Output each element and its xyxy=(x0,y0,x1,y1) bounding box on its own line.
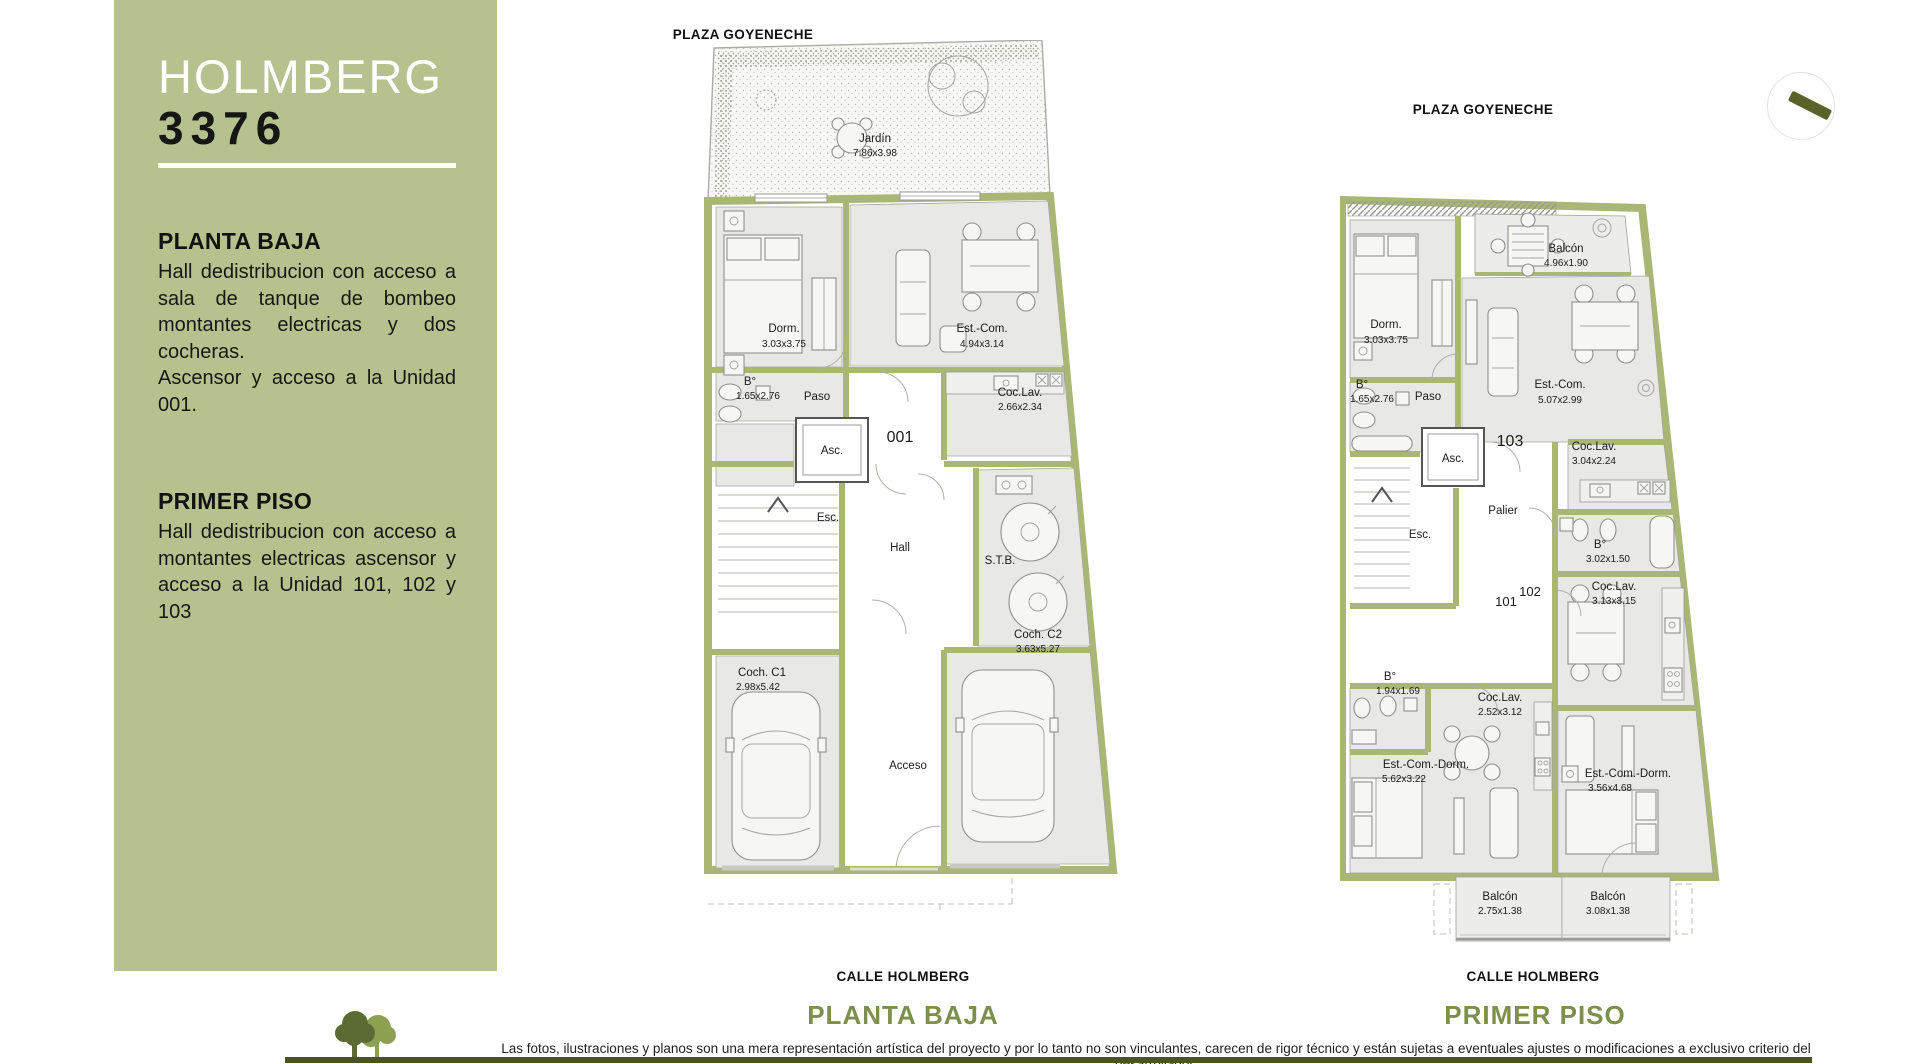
room-dims-coch-c1: 2.98x5.42 xyxy=(736,682,780,693)
calle-label-primer-piso: CALLE HOLMBERG xyxy=(1466,969,1599,984)
footer-bar xyxy=(285,1057,1812,1063)
room-label-bano-102: B° xyxy=(1594,539,1606,551)
section-paragraph: Hall dedistribucion con acceso a montant… xyxy=(158,519,456,625)
compass-needle-icon xyxy=(1788,91,1832,121)
section-heading-planta-baja: PLANTA BAJA xyxy=(158,228,456,255)
room-label-jardin: Jardín xyxy=(859,133,891,145)
property-lines xyxy=(708,878,1012,910)
room-label-acceso: Acceso xyxy=(889,760,927,772)
room-dims-est-com: 5.07x2.99 xyxy=(1538,395,1582,406)
room-label-bano-101: B° xyxy=(1384,671,1396,683)
kitchen-counter xyxy=(1580,480,1670,502)
room-dims-bano-1: 1.65x2.76 xyxy=(1350,394,1394,405)
room-label-est-com-dorm-101: Est.-Com.-Dorm. xyxy=(1383,759,1469,771)
room-label-dorm: Dorm. xyxy=(768,323,799,335)
room-label-asc: Asc. xyxy=(1442,453,1464,465)
room-dims-coch-c2: 3.63x5.27 xyxy=(1016,644,1060,655)
room-label-balcon-101: Balcón xyxy=(1482,891,1517,903)
room-dims-coc-lav-102: 3.13x3.15 xyxy=(1592,596,1636,607)
room-dims-balcon-102: 3.08x1.38 xyxy=(1586,906,1630,917)
room-label-bano: B° xyxy=(744,376,756,388)
room-label-est-com: Est.-Com. xyxy=(1534,379,1585,391)
room-label-bano-1: B° xyxy=(1356,379,1368,391)
room-label-coc-lav-103: Coc.Lav. xyxy=(1572,441,1617,453)
page: HOLMBERG 3376 PLANTA BAJA Hall dedistrib… xyxy=(0,0,1920,1064)
caption-primer-piso: PRIMER PISO xyxy=(1444,1000,1625,1031)
unit-number-001: 001 xyxy=(887,429,914,446)
caption-planta-baja: PLANTA BAJA xyxy=(807,1000,999,1031)
room-dims-coc-lav-101: 2.52x3.12 xyxy=(1478,707,1522,718)
calle-label-planta-baja: CALLE HOLMBERG xyxy=(836,969,969,984)
room-dims-est-com-dorm-102: 3.56x4.68 xyxy=(1588,783,1632,794)
room-dims-bano: 1.65x2.76 xyxy=(736,391,780,402)
room-dims-bano-101: 1.94x1.69 xyxy=(1376,686,1420,697)
car-icon xyxy=(726,692,826,860)
room-label-coch-c2: Coch. C2 xyxy=(1014,629,1062,641)
unit-number-103: 103 xyxy=(1497,433,1524,450)
room-dims-dorm: 3.03x3.75 xyxy=(1364,335,1408,346)
room-dims-balcon-101: 2.75x1.38 xyxy=(1478,906,1522,917)
floorplan-primer-piso: Balcón 4.96x1.90 Dorm. 3.03x3.75 Est.-Co… xyxy=(1340,150,1740,950)
section-paragraph: Ascensor y acceso a la Unidad 001. xyxy=(158,365,456,418)
room-label-balcon-102: Balcón xyxy=(1590,891,1625,903)
room-label-est-com: Est.-Com. xyxy=(956,323,1007,335)
section-heading-primer-piso: PRIMER PISO xyxy=(158,488,456,515)
room-dims-jardin: 7.86x3.98 xyxy=(853,148,897,159)
room-label-stb: S.T.B. xyxy=(985,555,1016,567)
room-dims-coc-lav: 2.66x2.34 xyxy=(998,402,1042,413)
unit-number-101: 101 xyxy=(1495,594,1517,609)
room-label-coc-lav-101: Coc.Lav. xyxy=(1478,692,1523,704)
room-label-coch-c1: Coch. C1 xyxy=(738,667,786,679)
sidebar: HOLMBERG 3376 PLANTA BAJA Hall dedistrib… xyxy=(114,0,497,971)
kitchen-counter xyxy=(1662,588,1684,700)
room-label-balcon-norte: Balcón xyxy=(1548,243,1583,255)
room-dims-bano-102: 3.02x1.50 xyxy=(1586,554,1630,565)
room-label-coc-lav-102: Coc.Lav. xyxy=(1592,581,1637,593)
room-label-paso: Paso xyxy=(804,391,830,403)
tree-logo xyxy=(328,1008,406,1062)
compass-icon xyxy=(1767,72,1835,140)
floorplan-planta-baja: Jardín 7.86x3.98 xyxy=(700,40,1135,910)
car-icon xyxy=(956,670,1058,842)
stairs-arrow-icon xyxy=(1372,488,1392,502)
unit-number-102: 102 xyxy=(1519,584,1541,599)
section-paragraph: Hall dedistribucion con acceso a sala de… xyxy=(158,259,456,365)
room-dims-coc-lav-103: 3.04x2.24 xyxy=(1572,456,1616,467)
room-label-esc: Esc. xyxy=(1409,529,1431,541)
room-dims-balcon-norte: 4.96x1.90 xyxy=(1544,258,1588,269)
plaza-label-primer-piso: PLAZA GOYENECHE xyxy=(1413,102,1554,117)
room-label-dorm: Dorm. xyxy=(1370,319,1401,331)
room-label-palier: Palier xyxy=(1488,505,1518,517)
room-dims-est-com-dorm-101: 5.62x3.22 xyxy=(1382,774,1426,785)
stairs xyxy=(1354,468,1410,588)
room-label-hall: Hall xyxy=(890,542,910,554)
garden-area: Jardín 7.86x3.98 xyxy=(708,40,1050,201)
room-label-paso: Paso xyxy=(1415,391,1441,403)
stairs-arrow-icon xyxy=(768,498,788,512)
room-dims-dorm: 3.03x3.75 xyxy=(762,339,806,350)
room-label-asc: Asc. xyxy=(821,445,843,457)
room-label-coc-lav: Coc.Lav. xyxy=(998,387,1043,399)
room-label-esc: Esc. xyxy=(817,512,839,524)
sidebar-rule xyxy=(158,163,456,168)
room-dims-est-com: 4.94x3.14 xyxy=(960,339,1004,350)
project-number: 3376 xyxy=(158,105,456,151)
project-title: HOLMBERG xyxy=(158,52,456,101)
kitchen-counter xyxy=(1534,702,1552,790)
room-label-est-com-dorm-102: Est.-Com.-Dorm. xyxy=(1585,768,1671,780)
